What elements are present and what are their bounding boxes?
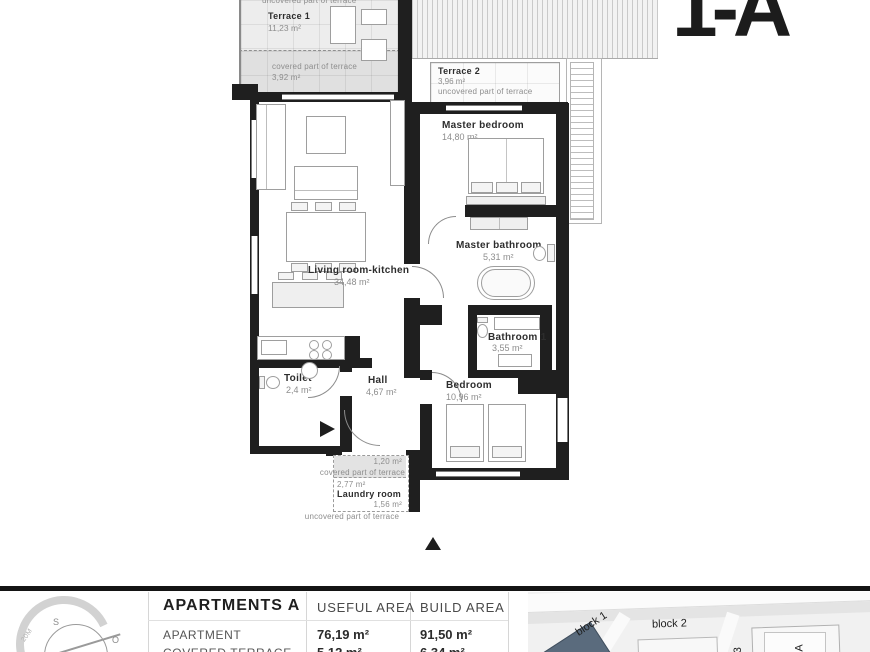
living-room-name: Living room-kitchen — [308, 265, 409, 276]
table-border — [306, 592, 307, 652]
laundry-covered-area-b: 2,77 m² — [337, 480, 366, 489]
pillow — [521, 182, 541, 193]
toilet-tank — [259, 376, 265, 389]
table-border — [508, 592, 509, 652]
terrace1-covered-note: covered part of terrace — [272, 62, 357, 71]
block2-building — [637, 637, 718, 652]
stove-burner — [322, 340, 332, 350]
toilet-bowl — [533, 246, 546, 261]
hall-name: Hall — [368, 375, 388, 386]
table-row-useful: 76,19 m² — [317, 627, 369, 642]
table-title: APARTMENTS A — [163, 597, 300, 615]
terrace1-area: 11,23 m² — [268, 23, 301, 33]
door-arc — [428, 216, 456, 244]
block3-label: block 3 — [732, 638, 744, 652]
bedroom-name: Bedroom — [446, 380, 492, 391]
sofa-l-shaped — [256, 104, 286, 190]
terrace2-area-value: 3,96 m² — [438, 77, 465, 86]
terrace2-name: Terrace 2 — [438, 66, 480, 76]
sofa-back-line — [295, 190, 357, 191]
sofa-cushion-line — [266, 105, 267, 189]
terrace-lounger — [361, 39, 387, 61]
round-sink — [301, 362, 318, 379]
bedroom-area: 10,96 m² — [446, 392, 482, 402]
toilet-tank — [547, 244, 555, 262]
bathtub-inner — [481, 269, 531, 297]
living-room-area: 34,48 m² — [334, 277, 370, 287]
wall — [468, 370, 556, 378]
laundry-uncovered-note: uncovered part of terrace — [296, 512, 408, 521]
table-row-label: APARTMENT — [163, 628, 241, 642]
dining-table — [286, 212, 366, 262]
stove-burner — [309, 350, 319, 360]
table-row-label: COVERED TERRACE — [163, 646, 292, 652]
vanity-divider — [499, 218, 500, 229]
window — [282, 94, 394, 100]
terrace1-name: Terrace 1 — [268, 11, 310, 21]
toilet-tank — [477, 317, 488, 323]
rug — [306, 116, 346, 154]
tv-sideboard — [390, 100, 405, 186]
wall — [340, 362, 352, 372]
toilet-area: 2,4 m² — [286, 385, 312, 395]
sliding-door — [446, 105, 522, 111]
kitchen-sink — [261, 340, 287, 355]
site-map: block 1 block 2 block 3 A — [528, 592, 870, 652]
pillow — [471, 182, 493, 193]
stairs-strip — [570, 62, 594, 220]
shower — [494, 317, 540, 330]
wall — [468, 305, 477, 372]
pillow — [492, 446, 522, 458]
toilet-bowl — [266, 376, 280, 389]
master-bathroom-name: Master bathroom — [456, 240, 542, 251]
table-col-useful: USEFUL AREA — [317, 600, 415, 615]
door-arc — [412, 266, 444, 298]
dining-chair — [315, 202, 332, 211]
hall-area: 4,67 m² — [366, 387, 397, 397]
table-border — [148, 620, 508, 621]
window — [557, 398, 568, 442]
stove-burner — [322, 350, 332, 360]
laundry-covered-area-a: 1,20 m² — [340, 457, 402, 466]
table-row-useful: 5,12 m² — [317, 645, 362, 652]
deck-area — [412, 0, 658, 59]
wall — [468, 305, 543, 315]
terrace1-covered-area-value: 3,92 m² — [272, 73, 301, 82]
master-bedroom-name: Master bedroom — [442, 120, 524, 131]
pillow — [496, 182, 518, 193]
dining-chair — [291, 263, 308, 272]
laundry-name: Laundry room — [337, 489, 401, 499]
wall — [420, 404, 432, 470]
toilet-bowl — [477, 324, 488, 338]
pillow — [450, 446, 480, 458]
terrace-table — [361, 9, 387, 25]
unit-a-label: A — [794, 644, 806, 651]
stove-burner — [309, 340, 319, 350]
wall — [518, 378, 556, 394]
master-bathroom-area: 5,31 m² — [483, 252, 514, 262]
wall — [398, 0, 412, 102]
window — [436, 471, 520, 477]
section-marker-icon — [425, 537, 441, 550]
sofa — [294, 166, 358, 200]
laundry-area: 1,56 m² — [340, 500, 402, 509]
laundry-covered-note: covered part of terrace — [293, 468, 405, 477]
compass-south-label: S — [53, 617, 59, 627]
wardrobe — [466, 196, 546, 205]
bathroom-sink — [498, 354, 532, 367]
bottom-divider-bar — [0, 586, 870, 591]
floor-plan-page: 1-A uncovered part of terrace Terrace 1 … — [0, 0, 870, 652]
block2-label: block 2 — [652, 617, 687, 630]
dining-chair — [339, 202, 356, 211]
terrace-lounger — [330, 6, 356, 44]
table-border — [148, 592, 149, 652]
block1-building — [537, 622, 611, 652]
table-row-build: 91,50 m² — [420, 627, 472, 642]
wall — [404, 102, 420, 264]
table-col-build: BUILD AREA — [420, 600, 505, 615]
dining-chair — [291, 202, 308, 211]
compass-west-label: O — [112, 635, 119, 645]
window — [251, 236, 258, 294]
wall — [465, 205, 556, 217]
plan-code-label: 1-A — [672, 0, 786, 50]
terrace1-top-note: uncovered part of terrace — [262, 0, 356, 5]
bar-stool — [278, 272, 294, 280]
entrance-arrow-icon — [320, 421, 335, 437]
wall — [344, 336, 360, 364]
bathroom1-name: Bathroom 1 — [488, 332, 547, 343]
terrace2-note: uncovered part of terrace — [438, 87, 532, 96]
wall — [420, 370, 432, 380]
wall — [415, 305, 442, 325]
bathroom1-area: 3,55 m² — [492, 343, 523, 353]
table-row-build: 6,34 m² — [420, 645, 465, 652]
